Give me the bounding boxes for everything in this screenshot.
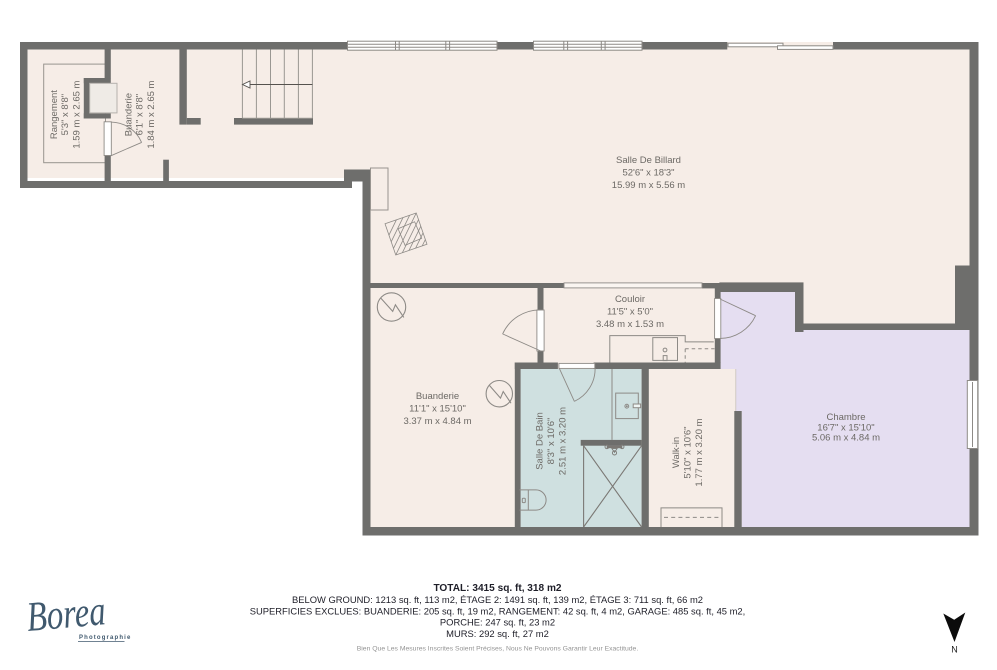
svg-text:Borea: Borea — [25, 587, 108, 641]
svg-text:1.84 m x 2.65 m: 1.84 m x 2.65 m — [146, 80, 157, 148]
svg-text:N: N — [951, 645, 958, 655]
svg-text:BELOW GROUND: 1213 sq. ft, 113: BELOW GROUND: 1213 sq. ft, 113 m2, ÉTAGE… — [292, 594, 703, 605]
svg-text:6'1" x 8'8": 6'1" x 8'8" — [135, 94, 146, 136]
svg-text:1.77 m x 3.20 m: 1.77 m x 3.20 m — [694, 418, 705, 486]
svg-text:Buanderie: Buanderie — [124, 93, 135, 136]
svg-text:Buanderie: Buanderie — [416, 391, 459, 402]
svg-text:MURS: 292 sq. ft, 27 m2: MURS: 292 sq. ft, 27 m2 — [446, 628, 549, 639]
svg-text:5'3" x 8'8": 5'3" x 8'8" — [60, 94, 71, 136]
svg-text:11'5" x 5'0": 11'5" x 5'0" — [607, 307, 653, 318]
svg-text:PORCHE: 247 sq. ft, 23 m2: PORCHE: 247 sq. ft, 23 m2 — [440, 617, 555, 628]
svg-text:8'3" x 10'6": 8'3" x 10'6" — [546, 418, 557, 465]
svg-text:11'1" x 15'10": 11'1" x 15'10" — [409, 404, 466, 415]
svg-text:Rangement: Rangement — [49, 90, 60, 139]
svg-text:Photographie: Photographie — [79, 635, 131, 641]
svg-text:Walk-in: Walk-in — [671, 437, 682, 468]
svg-text:3.48 m x 1.53 m: 3.48 m x 1.53 m — [596, 319, 664, 330]
svg-text:Salle De Billard: Salle De Billard — [616, 155, 681, 166]
svg-text:5.06 m x 4.84 m: 5.06 m x 4.84 m — [812, 433, 880, 444]
svg-text:3.37 m x 4.84 m: 3.37 m x 4.84 m — [403, 416, 471, 427]
svg-text:52'6" x 18'3": 52'6" x 18'3" — [622, 168, 674, 179]
svg-text:Bien Que Les Mesures Inscrites: Bien Que Les Mesures Inscrites Soient Pr… — [357, 646, 639, 653]
svg-text:Salle De Bain: Salle De Bain — [535, 412, 546, 470]
svg-text:15.99 m x 5.56 m: 15.99 m x 5.56 m — [612, 180, 685, 191]
svg-text:Couloir: Couloir — [615, 294, 645, 305]
svg-text:1.59 m x 2.65 m: 1.59 m x 2.65 m — [72, 80, 83, 148]
svg-text:Chambre: Chambre — [826, 412, 865, 423]
svg-text:5'10" x 10'6": 5'10" x 10'6" — [683, 426, 694, 478]
svg-text:2.51 m x 3.20 m: 2.51 m x 3.20 m — [558, 407, 569, 475]
svg-text:SUPERFICIES EXCLUES: BUANDERIE: SUPERFICIES EXCLUES: BUANDERIE: 205 sq. … — [250, 606, 745, 617]
svg-text:TOTAL: 3415 sq. ft, 318 m2: TOTAL: 3415 sq. ft, 318 m2 — [433, 583, 561, 594]
